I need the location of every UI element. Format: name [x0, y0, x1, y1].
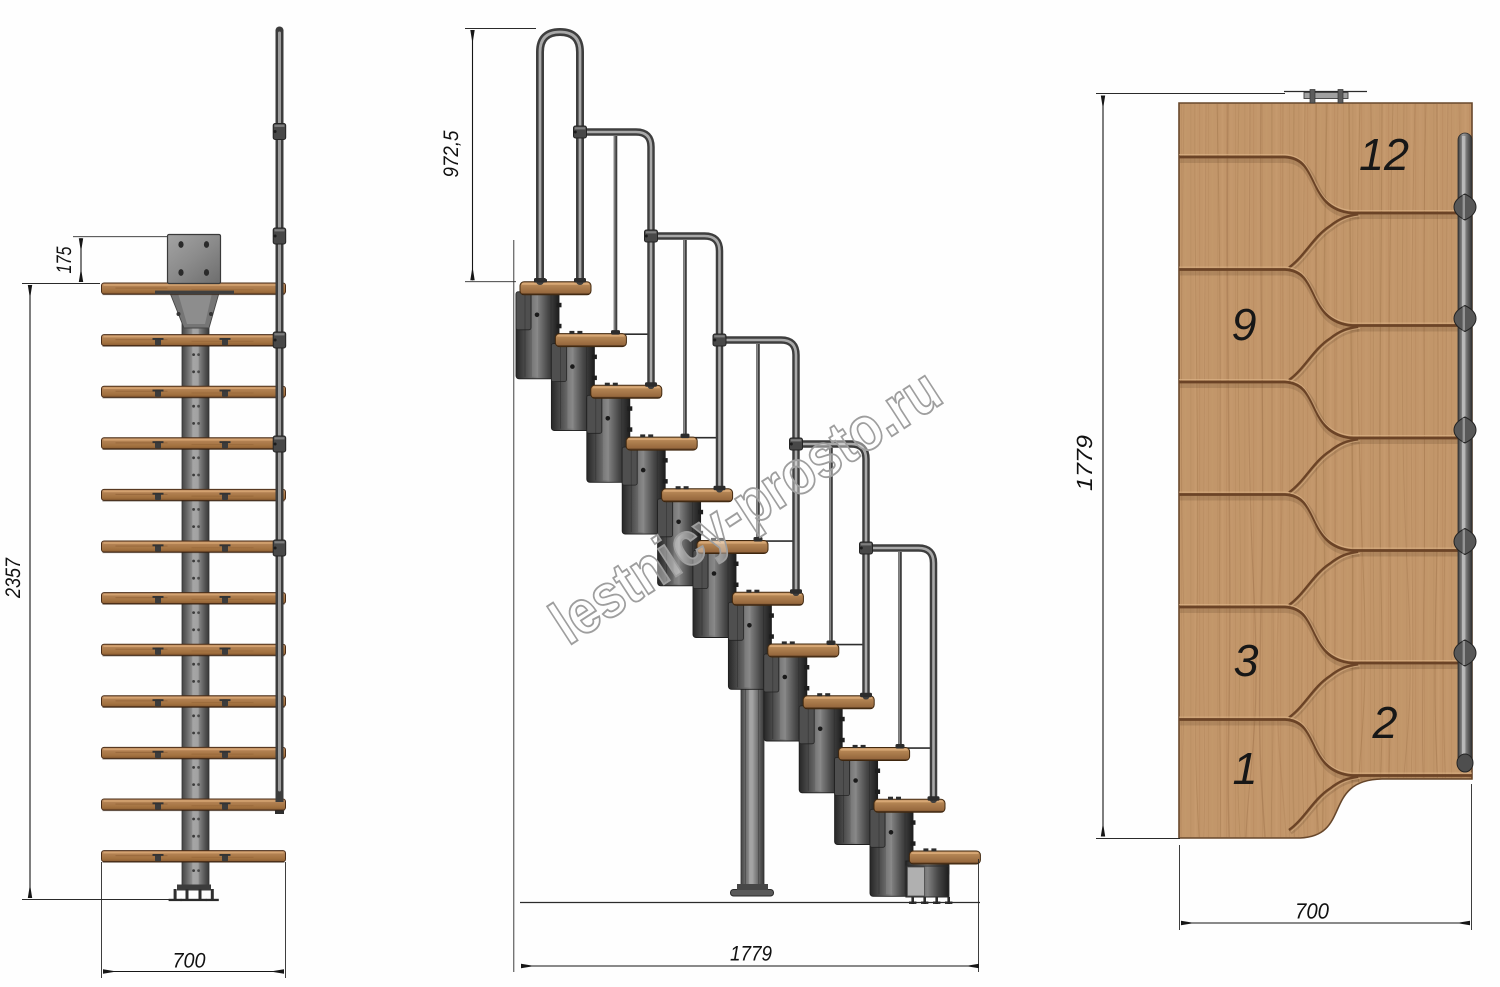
- svg-text:700: 700: [173, 950, 206, 973]
- svg-text:2: 2: [1371, 697, 1397, 748]
- svg-text:972,5: 972,5: [440, 130, 463, 177]
- svg-text:12: 12: [1359, 129, 1409, 180]
- svg-text:3: 3: [1233, 635, 1258, 686]
- svg-text:2357: 2357: [2, 557, 25, 599]
- svg-text:1779: 1779: [730, 943, 772, 966]
- svg-text:700: 700: [1295, 899, 1330, 924]
- svg-text:1779: 1779: [1072, 435, 1097, 491]
- svg-text:9: 9: [1231, 299, 1256, 350]
- svg-text:175: 175: [53, 246, 76, 273]
- svg-text:1: 1: [1232, 743, 1257, 794]
